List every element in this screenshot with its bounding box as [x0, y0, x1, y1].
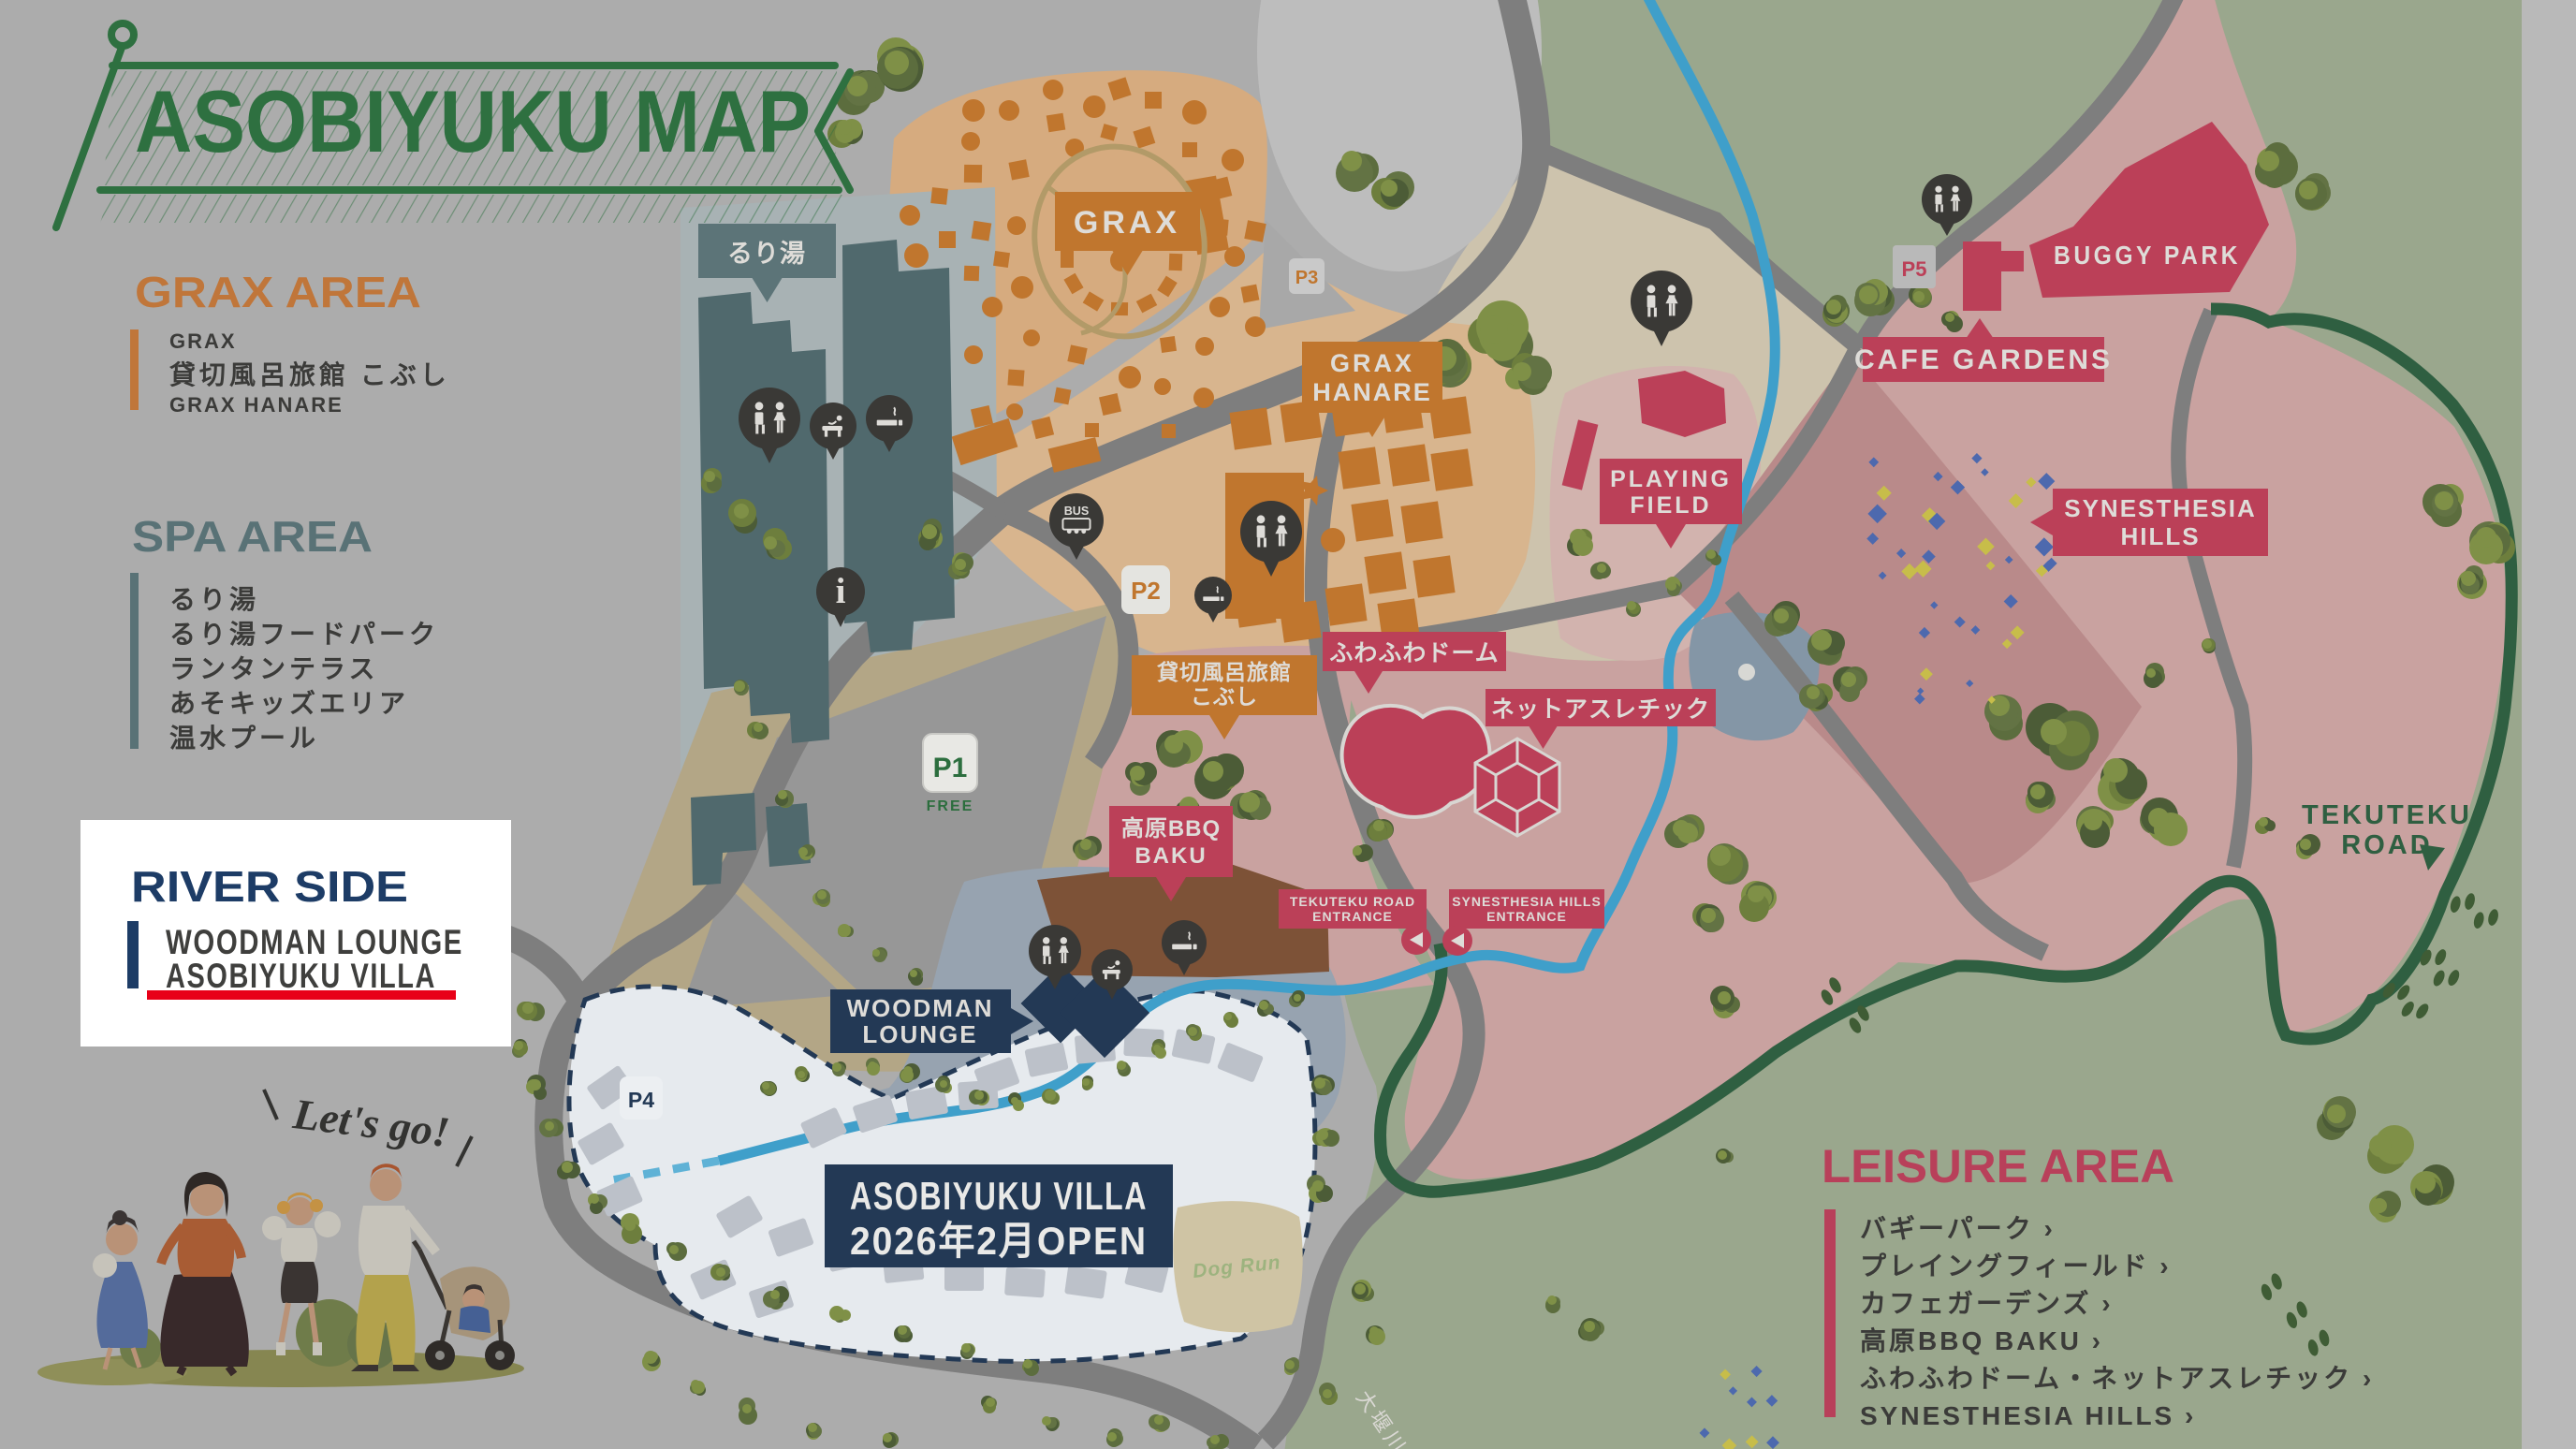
svg-text:貸切風呂旅館: 貸切風呂旅館	[1157, 660, 1292, 684]
svg-text:ASOBIYUKU VILLA: ASOBIYUKU VILLA	[166, 957, 436, 995]
svg-text:TEKUTEKU ROAD: TEKUTEKU ROAD	[1290, 894, 1415, 909]
svg-text:P4: P4	[628, 1088, 654, 1112]
svg-text:P1: P1	[933, 753, 968, 783]
svg-text:FIELD: FIELD	[1630, 492, 1711, 519]
svg-text:ふわふわドーム: ふわふわドーム	[1329, 640, 1499, 666]
svg-text:2026年2月OPEN: 2026年2月OPEN	[850, 1219, 1148, 1263]
svg-text:GRAX: GRAX	[1074, 205, 1180, 241]
svg-text:TEKUTEKU: TEKUTEKU	[2302, 800, 2472, 830]
svg-text:RIVER SIDE: RIVER SIDE	[131, 862, 408, 911]
svg-text:るり湯フードパーク: るり湯フードパーク	[169, 620, 439, 649]
svg-text:HANARE: HANARE	[1312, 378, 1432, 406]
svg-text:るり湯: るり湯	[727, 240, 806, 268]
svg-text:PLAYING: PLAYING	[1610, 466, 1732, 492]
svg-text:プレイングフィールド ›: プレイングフィールド ›	[1860, 1251, 2172, 1281]
svg-text:SYNESTHESIA HILLS: SYNESTHESIA HILLS	[1452, 894, 1602, 909]
svg-text:SYNESTHESIA HILLS ›: SYNESTHESIA HILLS ›	[1860, 1401, 2196, 1430]
svg-text:ASOBIYUKU MAP: ASOBIYUKU MAP	[135, 72, 811, 170]
svg-text:CAFE GARDENS: CAFE GARDENS	[1854, 344, 2113, 375]
svg-text:GRAX: GRAX	[1330, 349, 1414, 377]
svg-text:あそキッズエリア: あそキッズエリア	[169, 688, 409, 718]
svg-text:温水プール: 温水プール	[169, 724, 319, 753]
svg-text:P3: P3	[1295, 268, 1318, 288]
svg-text:ASOBIYUKU VILLA: ASOBIYUKU VILLA	[850, 1174, 1148, 1218]
svg-text:るり湯: るり湯	[169, 585, 259, 614]
svg-text:SYNESTHESIA: SYNESTHESIA	[2064, 494, 2257, 522]
svg-text:ENTRANCE: ENTRANCE	[1486, 909, 1567, 924]
svg-text:ENTRANCE: ENTRANCE	[1312, 909, 1393, 924]
svg-text:高原BBQ: 高原BBQ	[1121, 815, 1221, 842]
svg-text:i: i	[836, 571, 846, 611]
svg-text:こぶし: こぶし	[1191, 684, 1258, 709]
svg-text:貸切風呂旅館 こぶし: 貸切風呂旅館 こぶし	[169, 359, 450, 389]
svg-text:LOUNGE: LOUNGE	[862, 1020, 977, 1048]
svg-text:HILLS: HILLS	[2120, 522, 2200, 550]
svg-text:LEISURE AREA: LEISURE AREA	[1822, 1140, 2174, 1193]
svg-text:バギーパーク ›: バギーパーク ›	[1860, 1214, 2056, 1243]
svg-text:WOODMAN: WOODMAN	[847, 994, 994, 1022]
svg-text:GRAX: GRAX	[169, 329, 237, 353]
svg-text:ふわふわドーム・ネットアスレチック ›: ふわふわドーム・ネットアスレチック ›	[1860, 1364, 2374, 1393]
svg-text:P5: P5	[1902, 257, 1927, 281]
svg-text:カフェガーデンズ ›: カフェガーデンズ ›	[1860, 1288, 2114, 1318]
svg-text:GRAX HANARE: GRAX HANARE	[169, 393, 344, 417]
svg-text:ネットアスレチック: ネットアスレチック	[1491, 696, 1710, 723]
svg-text:SPA AREA: SPA AREA	[132, 512, 373, 561]
svg-text:BAKU: BAKU	[1134, 843, 1207, 869]
svg-text:P2: P2	[1131, 577, 1161, 605]
svg-text:GRAX AREA: GRAX AREA	[135, 268, 421, 316]
svg-text:高原BBQ BAKU ›: 高原BBQ BAKU ›	[1860, 1326, 2103, 1355]
svg-text:WOODMAN LOUNGE: WOODMAN LOUNGE	[166, 923, 463, 961]
svg-text:BUS: BUS	[1064, 505, 1090, 518]
svg-text:FREE: FREE	[927, 798, 974, 814]
svg-text:ROAD: ROAD	[2341, 830, 2432, 860]
svg-text:ランタンテラス: ランタンテラス	[169, 654, 378, 683]
svg-text:BUGGY PARK: BUGGY PARK	[2054, 241, 2241, 270]
